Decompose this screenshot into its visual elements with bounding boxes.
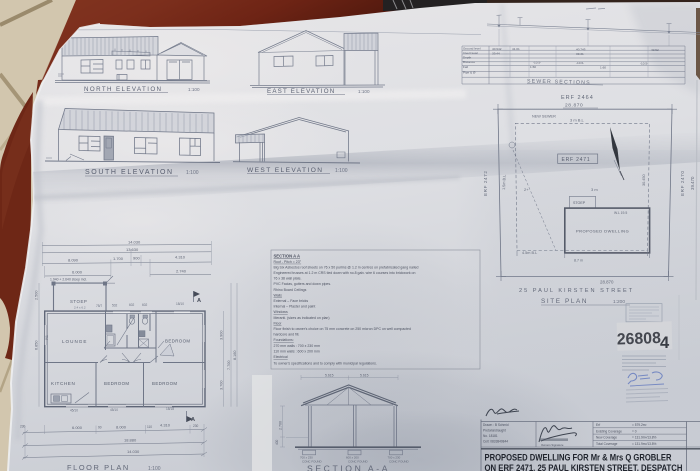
svg-text:Big Six Asbestos roof sheets o: Big Six Asbestos roof sheets on 76 x 50 … <box>274 265 419 269</box>
svg-text:90: 90 <box>98 425 102 429</box>
svg-text:1:100: 1:100 <box>188 87 200 92</box>
svg-text:STOEP: STOEP <box>70 299 87 304</box>
svg-text:230: 230 <box>193 424 199 428</box>
svg-text:28.870: 28.870 <box>565 103 583 109</box>
svg-text:602: 602 <box>129 303 135 307</box>
svg-text:Rhino Board Ceilings: Rhino Board Ceilings <box>274 288 307 292</box>
svg-text:BEDROOM: BEDROOM <box>165 339 191 344</box>
svg-text:400: 400 <box>275 439 279 445</box>
svg-text:A: A <box>197 298 201 304</box>
svg-text:Internal – Plaster and paint: Internal – Plaster and paint <box>274 305 316 309</box>
svg-text:LOUNGE: LOUNGE <box>62 339 87 344</box>
svg-text:-10.6-: -10.6- <box>576 61 584 65</box>
svg-text:EAST ELEVATION: EAST ELEVATION <box>267 88 335 95</box>
svg-text:4: 4 <box>660 334 670 352</box>
svg-text:ERF 2472: ERF 2472 <box>483 171 488 196</box>
svg-text:BEDROOM: BEDROOM <box>152 381 178 386</box>
svg-text:Owners Signature: Owners Signature <box>541 443 564 447</box>
svg-text:2.740: 2.740 <box>176 269 187 274</box>
svg-text:2.700: 2.700 <box>279 421 283 430</box>
svg-text:BEDROOM: BEDROOM <box>104 381 130 386</box>
svg-text:-10.5-: -10.5- <box>640 61 648 65</box>
svg-text:Meranti. (sizes as indicated o: Meranti. (sizes as indicated on plan) <box>274 316 330 320</box>
svg-text:75/7: 75/7 <box>96 304 102 308</box>
svg-text:8.160: 8.160 <box>233 350 237 360</box>
svg-text:Pretoria/draught: Pretoria/draught <box>483 429 506 433</box>
svg-text:110 mm walls : 600 x 200 mm: 110 mm walls : 600 x 200 mm <box>274 349 320 353</box>
svg-text:2.4 x 6.2: 2.4 x 6.2 <box>74 306 86 310</box>
svg-text:No. 18181: No. 18181 <box>483 434 498 438</box>
svg-text:6.850: 6.850 <box>35 340 39 350</box>
svg-text:ERF 2471: ERF 2471 <box>562 157 591 163</box>
svg-text:Electrical: Electrical <box>274 355 288 359</box>
svg-text:PROPOSED DWELLING: PROPOSED DWELLING <box>576 229 629 234</box>
svg-text:1:60: 1:60 <box>530 65 536 69</box>
svg-text:7.700: 7.700 <box>227 360 231 370</box>
svg-text:13.630: 13.630 <box>126 247 139 252</box>
svg-text:WEST ELEVATION: WEST ELEVATION <box>247 167 323 174</box>
svg-text:5.615: 5.615 <box>360 374 369 378</box>
svg-text:Pipe & Ø: Pipe & Ø <box>463 71 476 75</box>
svg-text:Total Coverage: Total Coverage <box>596 442 618 446</box>
svg-text:1:200: 1:200 <box>613 299 625 305</box>
svg-text:ON ERF 2471, 25 PAUL KIRSTEN S: ON ERF 2471, 25 PAUL KIRSTEN STREET, DES… <box>485 463 683 471</box>
svg-text:-10.5-: -10.5- <box>533 60 541 64</box>
svg-text:Erf: Erf <box>596 423 600 427</box>
svg-text:= 131.9m²/13.8%: = 131.9m²/13.8% <box>632 442 657 446</box>
svg-text:Fall: Fall <box>463 65 468 69</box>
svg-text:8.000: 8.000 <box>116 425 127 430</box>
svg-text:2+: 2+ <box>524 187 529 192</box>
svg-text:Windows: Windows <box>274 310 288 314</box>
svg-text:39.470: 39.470 <box>690 176 695 190</box>
svg-text:4.5m B.L: 4.5m B.L <box>522 251 537 255</box>
svg-text:1.940 + 2.640 stoep incl.: 1.940 + 2.640 stoep incl. <box>50 277 87 281</box>
svg-text:14.030: 14.030 <box>128 240 141 245</box>
svg-text:1.5m B.L: 1.5m B.L <box>502 175 507 190</box>
svg-text:6.000: 6.000 <box>72 269 83 274</box>
svg-text:18/10: 18/10 <box>176 302 184 306</box>
svg-text:602: 602 <box>142 303 148 307</box>
svg-text:A: A <box>191 417 195 423</box>
svg-text:6.000: 6.000 <box>72 425 83 430</box>
svg-text:14.030: 14.030 <box>127 449 140 454</box>
svg-text:Invert level: Invert level <box>463 51 478 55</box>
svg-text:STOEP: STOEP <box>573 201 586 205</box>
svg-text:Depth: Depth <box>463 56 472 60</box>
svg-text:Floor finish to owner's choice: Floor finish to owner's choice on 75 mm … <box>274 327 411 331</box>
svg-text:= 0: = 0 <box>632 429 637 433</box>
svg-text:Foundations:: Foundations: <box>274 338 294 342</box>
svg-text:1:100: 1:100 <box>186 170 199 176</box>
svg-text:Cell: 0833840844: Cell: 0833840844 <box>483 440 508 444</box>
svg-text:1:100: 1:100 <box>358 89 370 94</box>
svg-text:30.450: 30.450 <box>642 174 646 186</box>
svg-text:= 579.2m²: = 579.2m² <box>632 423 646 427</box>
svg-text:1.700: 1.700 <box>113 256 124 261</box>
svg-text:CONC FOUND: CONC FOUND <box>389 459 409 463</box>
svg-text:KITCHEN: KITCHEN <box>51 381 75 386</box>
svg-text:502: 502 <box>112 304 118 308</box>
svg-text:76 x 38 wall plate.: 76 x 38 wall plate. <box>274 277 302 281</box>
svg-text:45/10: 45/10 <box>70 409 78 413</box>
svg-text:1:100: 1:100 <box>335 168 348 174</box>
svg-text:W1: W1 <box>45 335 49 340</box>
svg-text:39.31: 39.31 <box>576 52 584 56</box>
svg-text:Roof - Pitch = 23°: Roof - Pitch = 23° <box>274 260 302 264</box>
svg-text:270 mm walls : 700 x 230 mm: 270 mm walls : 700 x 230 mm <box>274 344 321 348</box>
svg-text:= 131.9m²/13.8%: = 131.9m²/13.8% <box>632 436 657 440</box>
svg-text:Ground level: Ground level <box>463 47 481 51</box>
svg-text:3 m B.L: 3 m B.L <box>570 118 585 123</box>
svg-text:External – Face bricks: External – Face bricks <box>274 299 309 303</box>
svg-text:PVC Facias, gutters and down p: PVC Facias, gutters and down pipes. <box>274 282 332 286</box>
svg-text:39.44: 39.44 <box>492 51 500 55</box>
svg-text:40.745: 40.745 <box>576 47 586 51</box>
svg-text:Existing Coverage: Existing Coverage <box>596 429 622 433</box>
svg-text:1:60: 1:60 <box>600 66 606 70</box>
svg-text:2.500: 2.500 <box>35 290 39 300</box>
svg-text:SITE PLAN: SITE PLAN <box>541 298 588 305</box>
svg-text:Drawn : B Schmid: Drawn : B Schmid <box>483 423 509 427</box>
svg-text:110: 110 <box>147 425 152 429</box>
svg-text:28.870: 28.870 <box>600 280 614 285</box>
svg-text:5.615: 5.615 <box>325 374 334 378</box>
svg-text:NEW SEWER: NEW SEWER <box>532 115 556 119</box>
svg-text:40.52: 40.52 <box>651 48 659 52</box>
svg-text:PROPOSED DWELLING FOR Mr & Mrs: PROPOSED DWELLING FOR Mr & Mrs Q GROBLER <box>485 453 672 463</box>
svg-text:FLOOR PLAN: FLOOR PLAN <box>67 463 130 471</box>
svg-text:18.880: 18.880 <box>124 438 137 443</box>
svg-text:3.900: 3.900 <box>220 330 224 340</box>
svg-text:18/18: 18/18 <box>166 407 174 411</box>
svg-text:SECTION A-A: SECTION A-A <box>307 464 390 471</box>
svg-text:3.700: 3.700 <box>220 380 224 390</box>
svg-text:To owner's specifications and: To owner's specifications and to comply … <box>274 361 377 365</box>
svg-text:8.090: 8.090 <box>68 257 79 262</box>
svg-text:41.01: 41.01 <box>512 47 520 51</box>
svg-text:4.310: 4.310 <box>175 255 186 260</box>
svg-text:900: 900 <box>133 255 140 260</box>
svg-text:Floor: Floor <box>274 321 283 325</box>
svg-text:W.L 19.5: W.L 19.5 <box>614 211 627 215</box>
svg-text:ERF 2464: ERF 2464 <box>561 95 594 101</box>
svg-text:SECTION A A: SECTION A A <box>274 254 301 259</box>
svg-text:NORTH ELEVATION: NORTH ELEVATION <box>84 86 162 93</box>
svg-text:1:100: 1:100 <box>148 466 161 471</box>
svg-text:3 m: 3 m <box>591 187 598 192</box>
svg-text:SOUTH ELEVATION: SOUTH ELEVATION <box>85 169 174 176</box>
svg-text:25 PAUL KIRSTEN STREET: 25 PAUL KIRSTEN STREET <box>519 288 634 294</box>
svg-text:New Coverage: New Coverage <box>596 436 617 440</box>
svg-text:4.310: 4.310 <box>160 423 171 428</box>
svg-text:ERF 2470: ERF 2470 <box>680 171 685 196</box>
svg-text:Walls: Walls <box>274 293 283 297</box>
svg-text:hardcore and fill.: hardcore and fill. <box>274 333 300 337</box>
svg-text:45/10: 45/10 <box>110 408 118 412</box>
svg-text:Engineered trusses at 1.2 m CR: Engineered trusses at 1.2 m CRS tied dow… <box>274 271 416 275</box>
svg-text:230: 230 <box>20 425 26 429</box>
svg-text:Distance: Distance <box>463 60 475 64</box>
svg-text:40.942: 40.942 <box>492 47 502 51</box>
svg-text:26808: 26808 <box>617 330 662 349</box>
svg-text:8.7 m: 8.7 m <box>574 259 583 263</box>
